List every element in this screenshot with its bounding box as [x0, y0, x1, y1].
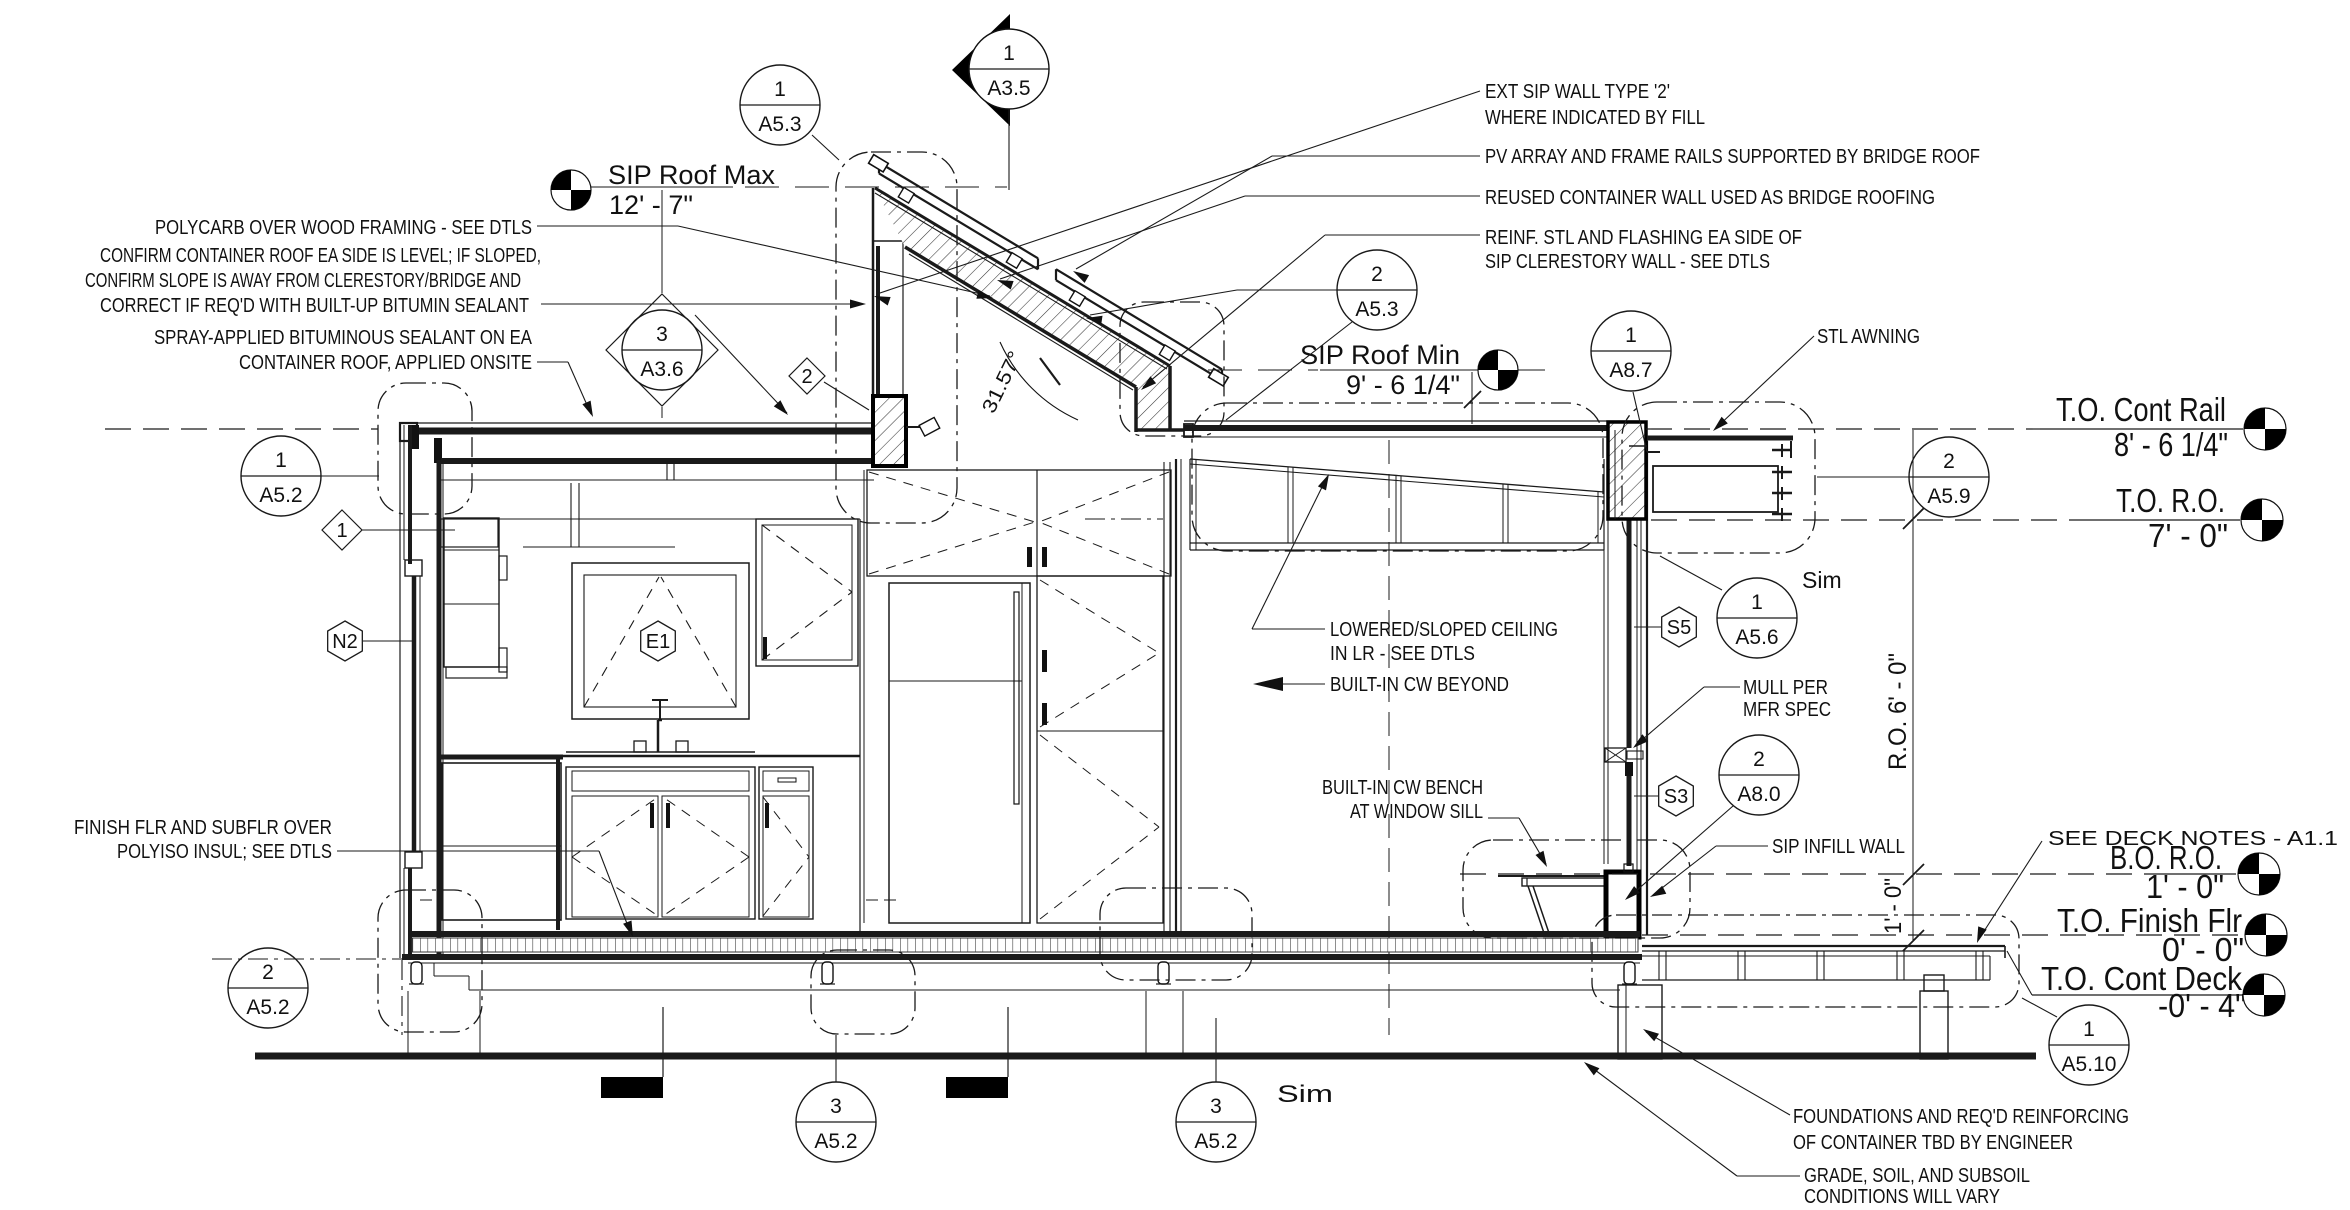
svg-text:T.O. Cont Rail: T.O. Cont Rail	[2056, 391, 2226, 428]
svg-text:1' - 0": 1' - 0"	[2146, 868, 2224, 905]
svg-text:2: 2	[1371, 263, 1383, 286]
svg-text:2: 2	[262, 961, 274, 984]
svg-text:SPRAY-APPLIED BITUMINOUS SEALA: SPRAY-APPLIED BITUMINOUS SEALANT ON EA	[154, 327, 533, 349]
svg-text:1: 1	[275, 449, 287, 472]
svg-text:A5.2: A5.2	[1194, 1130, 1237, 1153]
svg-text:IN LR - SEE DTLS: IN LR - SEE DTLS	[1330, 643, 1475, 665]
svg-text:S3: S3	[1664, 786, 1688, 808]
svg-text:1: 1	[2083, 1018, 2095, 1041]
svg-text:E1: E1	[646, 631, 670, 653]
svg-text:A3.5: A3.5	[987, 77, 1030, 100]
svg-text:REUSED CONTAINER WALL USED AS: REUSED CONTAINER WALL USED AS BRIDGE ROO…	[1485, 187, 1935, 209]
svg-text:1: 1	[774, 78, 786, 101]
svg-text:CONTAINER ROOF, APPLIED ONSITE: CONTAINER ROOF, APPLIED ONSITE	[239, 352, 532, 374]
svg-text:STL AWNING: STL AWNING	[1817, 326, 1920, 348]
svg-text:CONFIRM CONTAINER ROOF EA SIDE: CONFIRM CONTAINER ROOF EA SIDE IS LEVEL;…	[100, 245, 541, 267]
svg-text:PV ARRAY AND FRAME RAILS SUPPO: PV ARRAY AND FRAME RAILS SUPPORTED BY BR…	[1485, 146, 1980, 168]
svg-text:AT WINDOW SILL: AT WINDOW SILL	[1350, 801, 1483, 823]
svg-text:1: 1	[336, 520, 347, 542]
svg-text:A5.2: A5.2	[246, 996, 289, 1019]
svg-text:OF CONTAINER TBD BY ENGINEER: OF CONTAINER TBD BY ENGINEER	[1793, 1132, 2073, 1154]
svg-text:FOUNDATIONS AND REQ'D REINFORC: FOUNDATIONS AND REQ'D REINFORCING	[1793, 1106, 2129, 1128]
svg-text:REINF. STL AND FLASHING EA SI: REINF. STL AND FLASHING EA SIDE OF	[1485, 227, 1802, 249]
svg-text:SIP Roof Max: SIP Roof Max	[608, 160, 775, 190]
svg-text:WHERE INDICATED BY FILL: WHERE INDICATED BY FILL	[1485, 107, 1705, 129]
svg-text:POLYISO INSUL; SEE DTLS: POLYISO INSUL; SEE DTLS	[117, 841, 332, 863]
svg-text:BUILT-IN CW BENCH: BUILT-IN CW BENCH	[1322, 777, 1483, 799]
svg-text:9' - 6 1/4": 9' - 6 1/4"	[1346, 370, 1460, 400]
svg-text:T.O. R.O.: T.O. R.O.	[2116, 482, 2225, 519]
svg-text:1: 1	[1751, 591, 1763, 614]
svg-text:12' - 7": 12' - 7"	[609, 190, 693, 220]
svg-text:1' - 0": 1' - 0"	[1880, 878, 1907, 934]
svg-text:A8.7: A8.7	[1609, 359, 1652, 382]
svg-text:A8.0: A8.0	[1737, 783, 1780, 806]
svg-text:CONDITIONS WILL VARY: CONDITIONS WILL VARY	[1804, 1186, 2000, 1208]
svg-text:Sim: Sim	[1802, 567, 1842, 593]
svg-text:R.O. 6' - 0": R.O. 6' - 0"	[1884, 653, 1912, 770]
svg-text:FINISH FLR AND SUBFLR OVER: FINISH FLR AND SUBFLR OVER	[74, 817, 332, 839]
svg-text:A5.10: A5.10	[2062, 1053, 2117, 1076]
svg-text:SIP Roof Min: SIP Roof Min	[1300, 340, 1460, 370]
svg-text:1: 1	[1625, 324, 1637, 347]
svg-text:1: 1	[1003, 42, 1015, 65]
svg-text:A3.6: A3.6	[640, 358, 683, 381]
svg-text:MULL PER: MULL PER	[1743, 677, 1828, 699]
svg-text:2: 2	[801, 366, 812, 388]
svg-text:BUILT-IN CW BEYOND: BUILT-IN CW BEYOND	[1330, 674, 1509, 696]
svg-text:A5.2: A5.2	[814, 1130, 857, 1153]
svg-text:3: 3	[656, 323, 668, 346]
svg-text:POLYCARB OVER WOOD FRAMING - S: POLYCARB OVER WOOD FRAMING - SEE DTLS	[155, 217, 532, 239]
svg-text:2: 2	[1943, 450, 1955, 473]
svg-text:2: 2	[1753, 748, 1765, 771]
svg-text:SIP INFILL WALL: SIP INFILL WALL	[1772, 836, 1905, 858]
svg-text:SIP CLERESTORY WALL - SEE DTLS: SIP CLERESTORY WALL - SEE DTLS	[1485, 251, 1770, 273]
svg-text:A5.3: A5.3	[758, 113, 801, 136]
svg-text:LOWERED/SLOPED CEILING: LOWERED/SLOPED CEILING	[1330, 619, 1558, 641]
svg-text:-0' - 4": -0' - 4"	[2158, 987, 2246, 1024]
svg-text:Sim: Sim	[1277, 1081, 1333, 1108]
svg-text:CONFIRM SLOPE IS AWAY FROM CLE: CONFIRM SLOPE IS AWAY FROM CLERESTORY/BR…	[85, 270, 521, 292]
svg-text:3: 3	[1210, 1095, 1222, 1118]
svg-text:GRADE, SOIL, AND SUBSOIL: GRADE, SOIL, AND SUBSOIL	[1804, 1165, 2030, 1187]
svg-text:3: 3	[830, 1095, 842, 1118]
svg-text:SEE DECK NOTES - A1.1: SEE DECK NOTES - A1.1	[2048, 828, 2338, 850]
svg-text:A5.3: A5.3	[1355, 298, 1398, 321]
svg-text:N2: N2	[332, 631, 358, 653]
svg-text:MFR SPEC: MFR SPEC	[1743, 699, 1831, 721]
svg-text:7' - 0": 7' - 0"	[2148, 517, 2228, 554]
svg-text:A5.6: A5.6	[1735, 626, 1778, 649]
svg-text:EXT SIP WALL TYPE '2': EXT SIP WALL TYPE '2'	[1485, 81, 1670, 103]
svg-text:A5.9: A5.9	[1927, 485, 1970, 508]
svg-text:CORRECT IF REQ'D WITH BUILT-UP: CORRECT IF REQ'D WITH BUILT-UP BITUMIN S…	[100, 295, 529, 317]
svg-text:A5.2: A5.2	[259, 484, 302, 507]
svg-text:S5: S5	[1667, 617, 1691, 639]
svg-text:8' - 6 1/4": 8' - 6 1/4"	[2114, 426, 2228, 463]
